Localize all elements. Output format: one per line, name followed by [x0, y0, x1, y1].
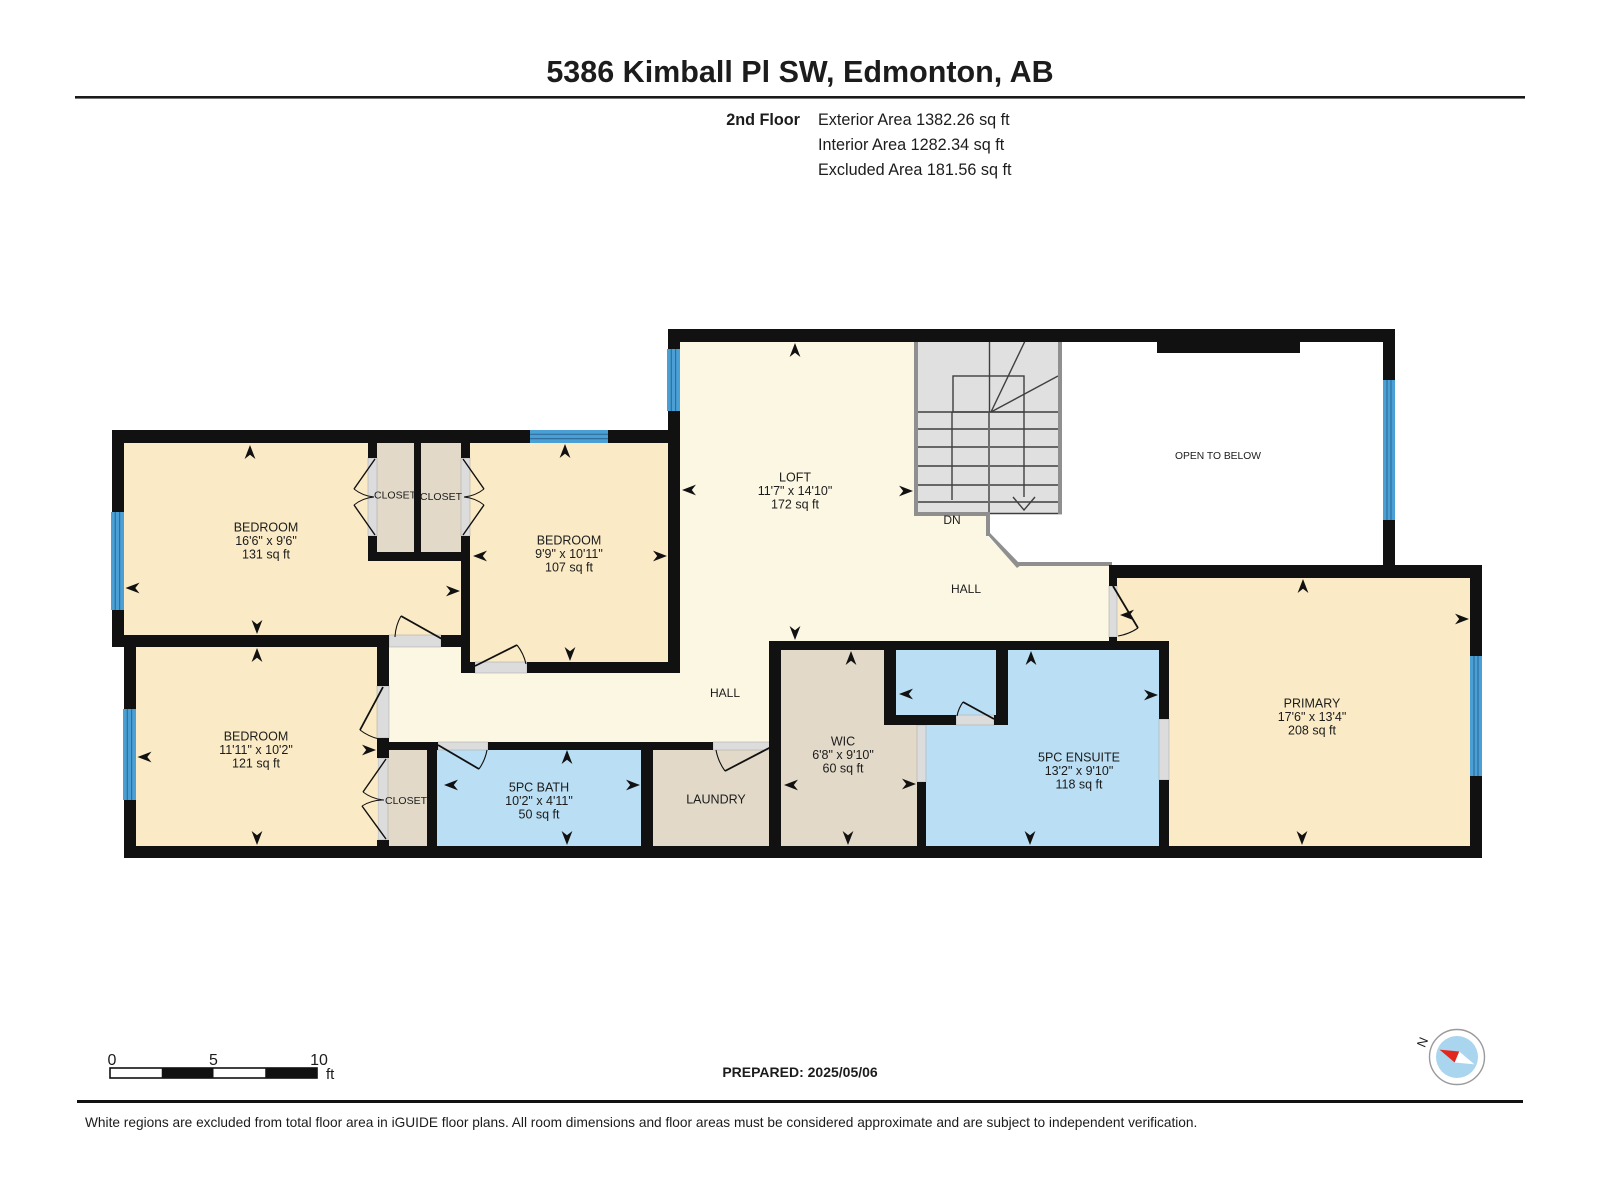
svg-text:6'8" x 9'10": 6'8" x 9'10" [812, 748, 874, 762]
svg-text:White regions are excluded fro: White regions are excluded from total fl… [85, 1115, 1197, 1130]
svg-text:2nd Floor: 2nd Floor [726, 111, 800, 129]
svg-text:10'2" x 4'11": 10'2" x 4'11" [505, 794, 573, 808]
svg-text:Interior Area 1282.34 sq ft: Interior Area 1282.34 sq ft [818, 136, 1005, 154]
svg-text:118 sq ft: 118 sq ft [1055, 778, 1103, 792]
svg-text:Exterior Area 1382.26 sq ft: Exterior Area 1382.26 sq ft [818, 111, 1010, 129]
svg-text:CLOSET: CLOSET [385, 795, 428, 807]
svg-text:5PC BATH: 5PC BATH [509, 781, 569, 795]
svg-text:CLOSET: CLOSET [374, 490, 417, 502]
svg-text:50 sq ft: 50 sq ft [519, 808, 561, 822]
svg-text:9'9" x 10'11": 9'9" x 10'11" [535, 547, 603, 561]
svg-text:WIC: WIC [831, 735, 855, 749]
svg-text:5386 Kimball Pl SW, Edmonton,: 5386 Kimball Pl SW, Edmonton, AB [546, 55, 1053, 89]
svg-text:17'6" x 13'4": 17'6" x 13'4" [1278, 710, 1347, 724]
svg-text:PRIMARY: PRIMARY [1284, 697, 1341, 711]
svg-text:PREPARED: 2025/05/06: PREPARED: 2025/05/06 [722, 1064, 878, 1080]
svg-text:13'2" x 9'10": 13'2" x 9'10" [1045, 764, 1114, 778]
svg-text:131 sq ft: 131 sq ft [242, 548, 290, 562]
svg-text:BEDROOM: BEDROOM [537, 534, 602, 548]
svg-text:CLOSET: CLOSET [420, 491, 463, 503]
svg-text:OPEN TO BELOW: OPEN TO BELOW [1175, 451, 1261, 462]
svg-text:107 sq ft: 107 sq ft [545, 561, 593, 575]
svg-text:LAUNDRY: LAUNDRY [686, 793, 746, 807]
svg-text:HALL: HALL [951, 582, 981, 596]
svg-text:BEDROOM: BEDROOM [224, 730, 289, 744]
svg-text:0: 0 [108, 1052, 117, 1069]
svg-text:Excluded Area 181.56 sq ft: Excluded Area 181.56 sq ft [818, 161, 1012, 179]
svg-text:60 sq ft: 60 sq ft [823, 762, 865, 776]
svg-text:ft: ft [326, 1066, 335, 1083]
svg-text:LOFT: LOFT [779, 471, 811, 485]
svg-text:208 sq ft: 208 sq ft [1288, 724, 1336, 738]
svg-text:172 sq ft: 172 sq ft [771, 498, 819, 512]
svg-text:DN: DN [943, 513, 960, 527]
svg-text:5: 5 [209, 1052, 218, 1069]
svg-text:BEDROOM: BEDROOM [234, 521, 299, 535]
svg-text:5PC ENSUITE: 5PC ENSUITE [1038, 751, 1120, 765]
svg-text:11'7" x 14'10": 11'7" x 14'10" [758, 484, 833, 498]
svg-text:11'11" x 10'2": 11'11" x 10'2" [219, 743, 293, 757]
svg-text:HALL: HALL [710, 686, 740, 700]
svg-text:121 sq ft: 121 sq ft [232, 757, 280, 771]
svg-text:16'6" x 9'6": 16'6" x 9'6" [235, 534, 297, 548]
